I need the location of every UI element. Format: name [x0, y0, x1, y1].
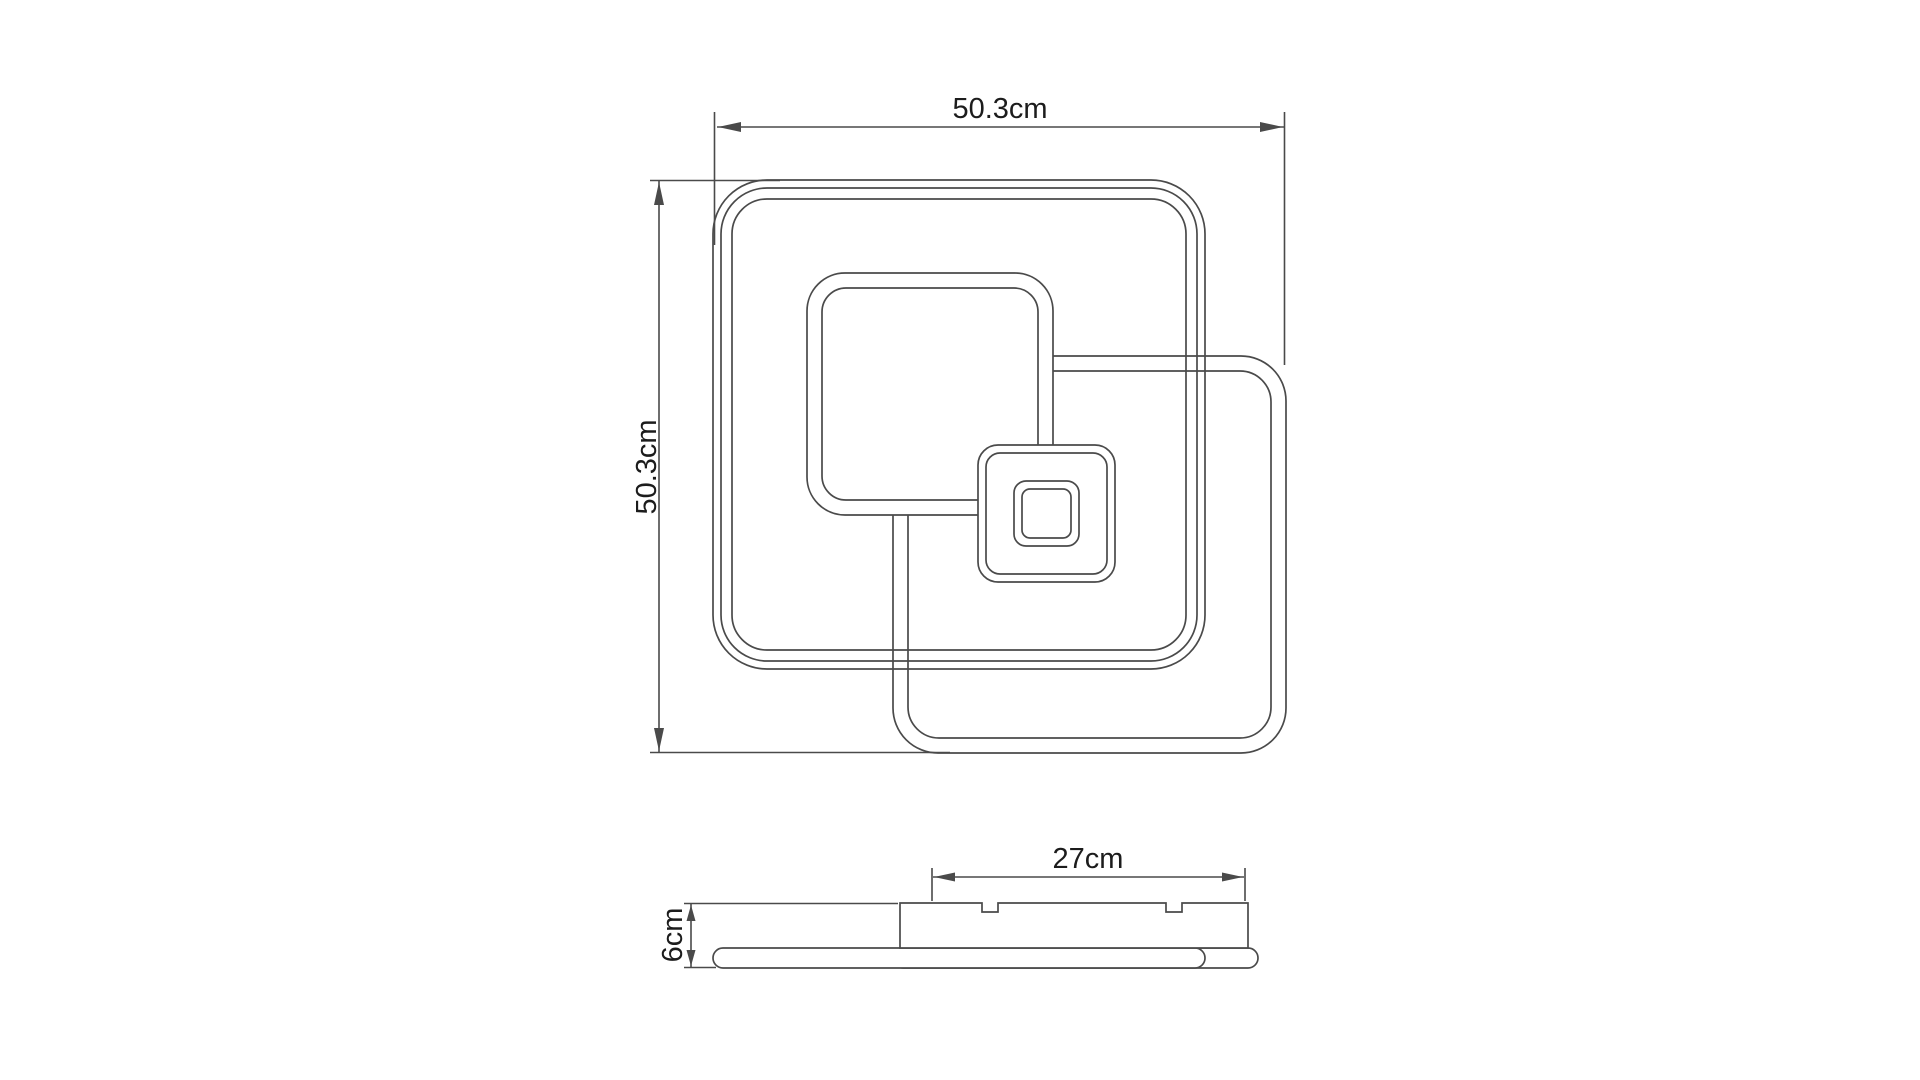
dim-label-fixture-height: 6cm [657, 908, 689, 963]
arrowhead-plate-left [934, 873, 955, 882]
dim-label-plate-width: 27cm [1053, 843, 1124, 875]
dimension-sheet: 50.3cm 50.3cm [0, 0, 1920, 1080]
arrowhead-top [654, 182, 664, 205]
small-square-ring [978, 445, 1115, 582]
arrowhead-right [1260, 122, 1283, 132]
dim-label-overall-width: 50.3cm [952, 93, 1047, 125]
side-profile-canopy [900, 903, 1248, 948]
dim-label-overall-height: 50.3cm [631, 419, 663, 514]
side-view: 27cm 6cm [657, 843, 1258, 968]
dimension-plate-width: 27cm [932, 843, 1245, 901]
top-view: 50.3cm 50.3cm [631, 93, 1286, 753]
side-profile-ring-a [713, 948, 1205, 968]
drawing-svg: 50.3cm 50.3cm [0, 0, 1920, 1080]
dimension-overall-height: 50.3cm [631, 181, 664, 752]
arrowhead-plate-right [1222, 873, 1243, 882]
arrowhead-left [718, 122, 741, 132]
arrowhead-bottom [654, 728, 664, 751]
